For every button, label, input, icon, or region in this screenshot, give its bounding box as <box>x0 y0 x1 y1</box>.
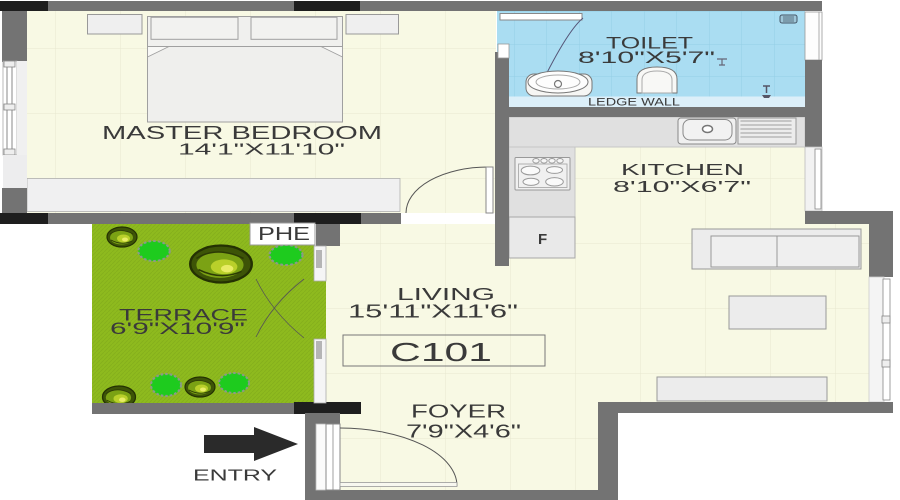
svg-text:8'10"X5'7": 8'10"X5'7" <box>578 48 715 67</box>
svg-text:MASTER BEDROOM: MASTER BEDROOM <box>102 123 382 143</box>
svg-text:15'11"X11'6": 15'11"X11'6" <box>348 302 518 322</box>
svg-text:C101: C101 <box>390 337 492 367</box>
svg-text:FOYER: FOYER <box>411 402 506 422</box>
svg-text:6'9"X10'9": 6'9"X10'9" <box>110 319 245 338</box>
svg-text:7'9"X4'6": 7'9"X4'6" <box>406 422 521 442</box>
svg-text:ENTRY: ENTRY <box>193 468 278 485</box>
svg-text:8'10"X6'7": 8'10"X6'7" <box>613 179 751 196</box>
svg-text:PHE: PHE <box>258 224 310 244</box>
svg-text:KITCHEN: KITCHEN <box>621 162 744 179</box>
svg-text:F: F <box>538 231 547 248</box>
svg-text:LEDGE WALL: LEDGE WALL <box>588 97 680 109</box>
svg-text:14'1"X11'10": 14'1"X11'10" <box>178 142 345 159</box>
